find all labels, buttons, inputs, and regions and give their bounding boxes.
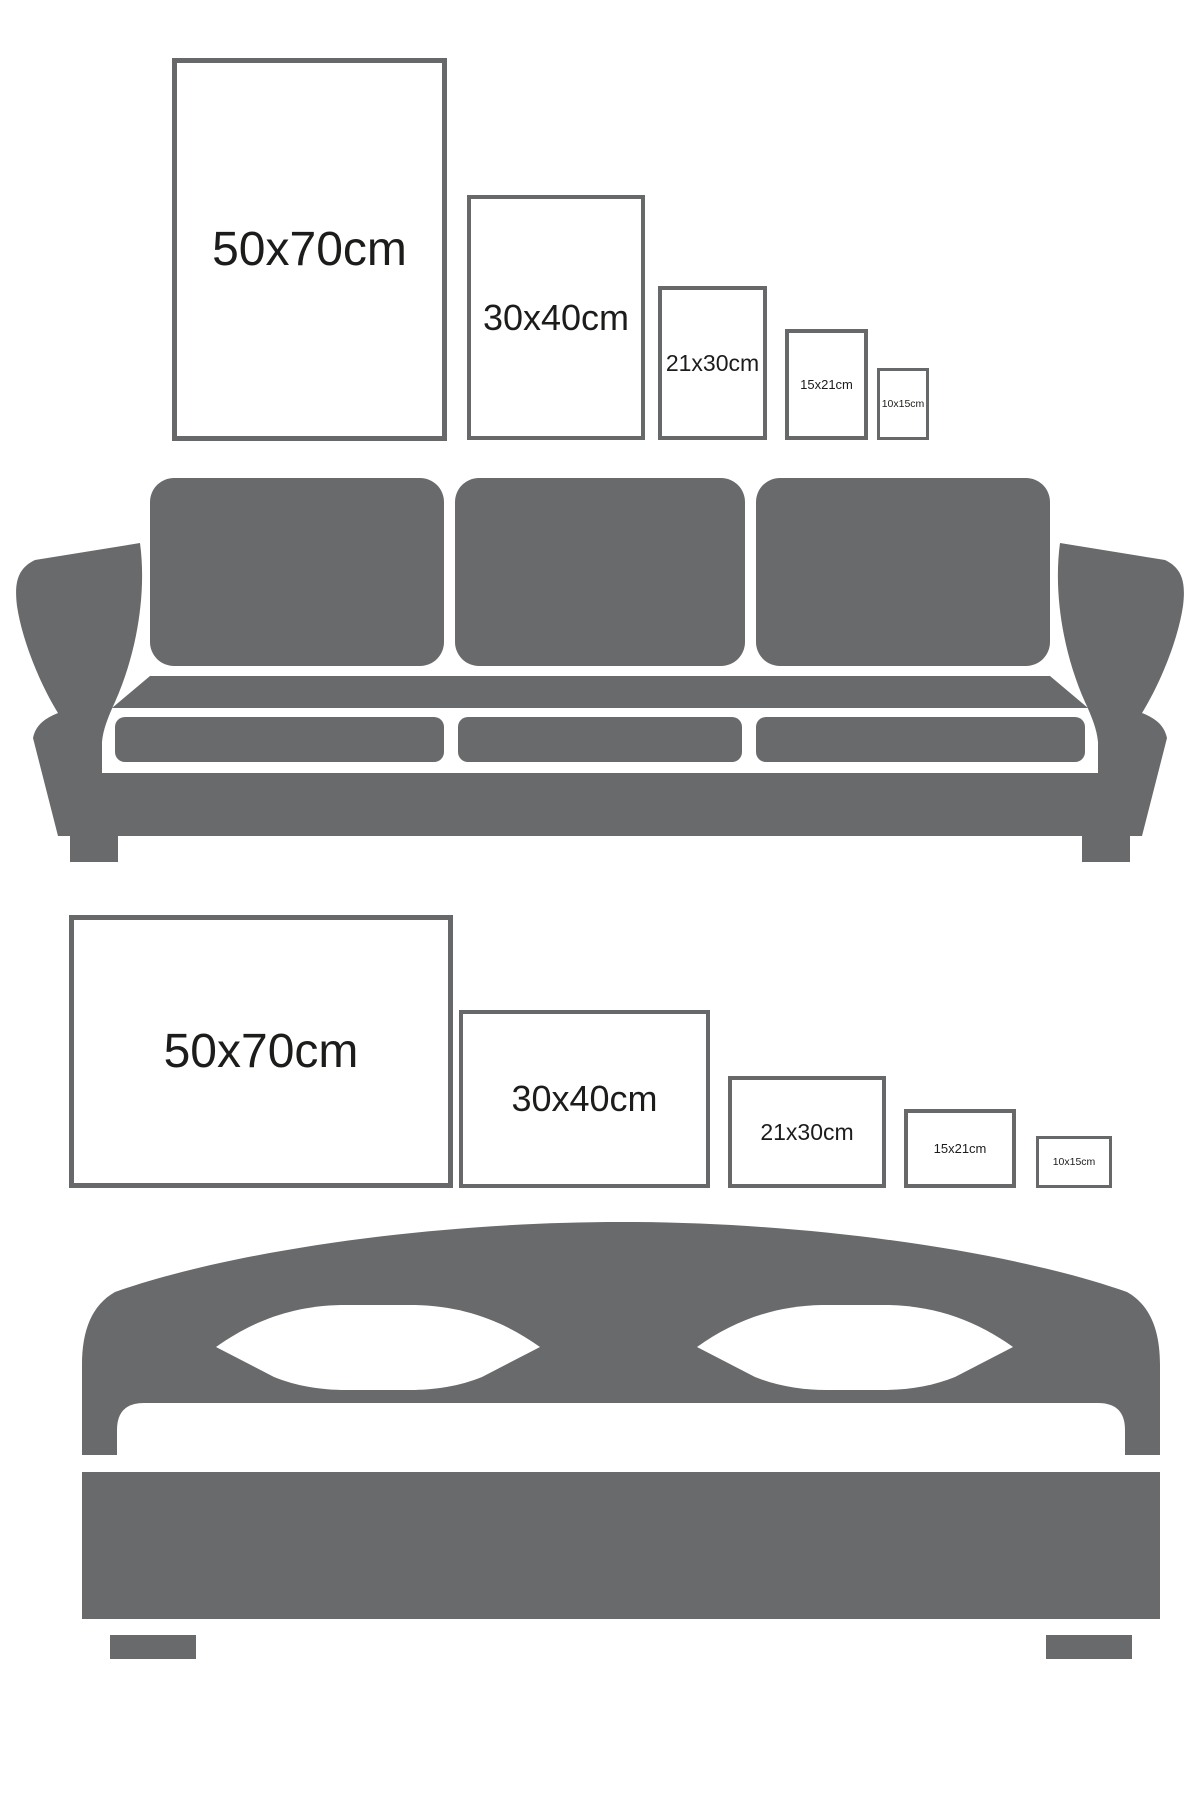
poster-frame-21x30-portrait: 21x30cm xyxy=(658,286,767,440)
poster-frame-30x40-landscape: 30x40cm xyxy=(459,1010,710,1188)
size-label: 10x15cm xyxy=(1053,1157,1096,1168)
size-label: 15x21cm xyxy=(934,1142,987,1155)
size-label: 15x21cm xyxy=(800,378,853,391)
bed-icon xyxy=(0,1200,1200,1670)
sofa-back-cushion xyxy=(756,478,1050,666)
poster-frame-10x15-portrait: 10x15cm xyxy=(877,368,929,440)
size-label: 10x15cm xyxy=(882,399,925,410)
sofa-icon xyxy=(0,470,1200,870)
size-label: 21x30cm xyxy=(666,352,759,375)
sofa-back-cushion xyxy=(455,478,745,666)
size-label: 30x40cm xyxy=(511,1081,657,1117)
poster-frame-15x21-portrait: 15x21cm xyxy=(785,329,868,440)
poster-frame-50x70-landscape: 50x70cm xyxy=(69,915,453,1188)
poster-frame-10x15-landscape: 10x15cm xyxy=(1036,1136,1112,1188)
bed-base xyxy=(82,1472,1160,1619)
sofa-seat-cushion xyxy=(756,717,1085,762)
size-label: 21x30cm xyxy=(760,1121,853,1144)
sofa-seat-cushion xyxy=(115,717,444,762)
poster-frame-15x21-landscape: 15x21cm xyxy=(904,1109,1016,1188)
sofa-seat-deck xyxy=(112,676,1088,708)
size-label: 30x40cm xyxy=(483,300,629,336)
size-label: 50x70cm xyxy=(212,226,407,274)
bed-leg xyxy=(1046,1635,1132,1659)
size-label: 50x70cm xyxy=(164,1028,359,1076)
poster-frame-21x30-landscape: 21x30cm xyxy=(728,1076,886,1188)
poster-frame-50x70-portrait: 50x70cm xyxy=(172,58,447,441)
size-guide-canvas: 50x70cm 30x40cm 21x30cm 15x21cm 10x15cm … xyxy=(0,0,1200,1800)
poster-frame-30x40-portrait: 30x40cm xyxy=(467,195,645,440)
sofa-back-cushion xyxy=(150,478,444,666)
bed-leg xyxy=(110,1635,196,1659)
sofa-seat-cushion xyxy=(458,717,742,762)
